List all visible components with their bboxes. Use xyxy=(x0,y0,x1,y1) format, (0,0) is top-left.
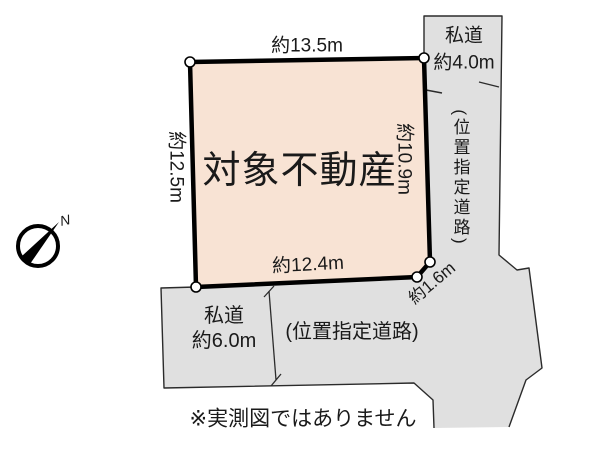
dimension-left-label: 約12.5m xyxy=(167,131,186,203)
survey-point-top-left xyxy=(185,57,195,67)
dimension-top-label: 約13.5m xyxy=(271,37,343,56)
survey-point-right-lower xyxy=(425,257,435,267)
right-road-type-label: (位置指定道路) xyxy=(452,109,469,246)
top-road-width-label: 約4.0m xyxy=(433,54,494,73)
parcel-title: 対象不動産 xyxy=(202,152,397,190)
compass-icon xyxy=(18,222,59,266)
bottom-road-width-label: 約6.0m xyxy=(192,331,256,351)
disclaimer-text: ※実測図ではありません xyxy=(190,409,417,430)
survey-point-bottom-left xyxy=(191,282,201,292)
top-road-name-label: 私道 xyxy=(445,27,483,46)
bottom-road-type-label: (位置指定道路) xyxy=(285,322,418,342)
bottom-road-name-label: 私道 xyxy=(204,306,244,326)
survey-point-top-right xyxy=(419,53,429,63)
dimension-bottom-label: 約12.4m xyxy=(272,254,345,277)
land-plot-diagram: 私道 約4.0m (位置指定道路) 約13.5m 約12.5m 約10.9m 約… xyxy=(0,0,600,450)
plot-drawing-canvas xyxy=(0,0,600,450)
